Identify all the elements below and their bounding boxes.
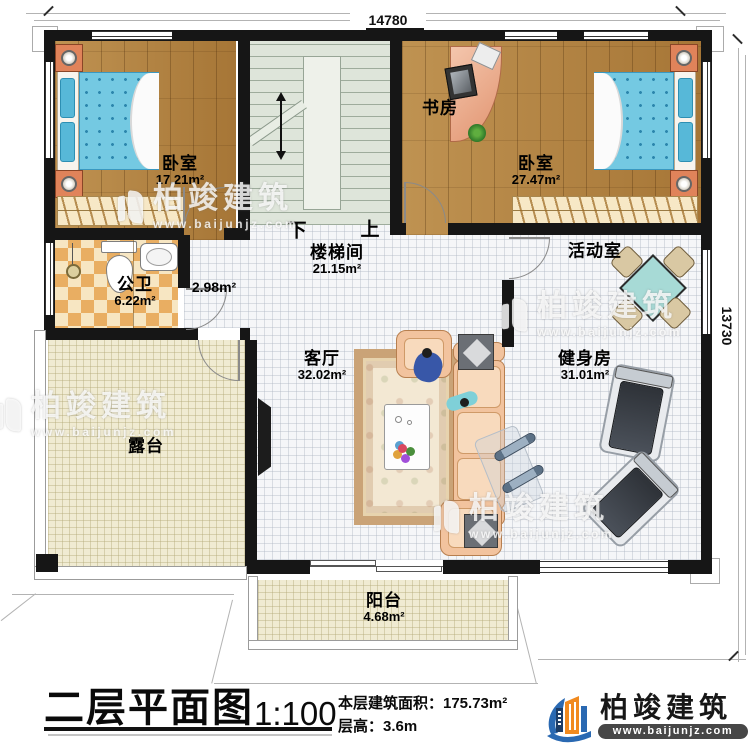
- floor-plan-page: 14780 13730: [0, 0, 750, 751]
- side-table-inlay: [463, 339, 491, 367]
- label-terrace: 露台: [128, 436, 164, 455]
- wall-bedroom1-right: [238, 41, 250, 228]
- room-area: 6.22m²: [114, 294, 155, 309]
- coffee-table: [384, 404, 430, 470]
- stair-label-down: 下: [287, 216, 306, 243]
- corner-tick-top-left: [43, 6, 54, 17]
- balcony-parapet-right: [508, 576, 518, 648]
- bed1-pillow-2: [60, 122, 75, 162]
- apron-diag-terrace: [1, 593, 36, 621]
- title-underline-shadow: [48, 734, 332, 736]
- side-table-inlay: [468, 518, 496, 546]
- room-name: 楼梯间: [310, 243, 364, 262]
- sliding-door-panel: [376, 566, 442, 572]
- wall-living-bottom-b: [443, 560, 540, 574]
- label-balcony: 阳台 4.68m²: [363, 591, 404, 625]
- person-head: [422, 348, 432, 358]
- brand-logo-icon: [543, 692, 595, 746]
- wall-living-gym-divider: [502, 280, 514, 347]
- apron-line-terrace: [12, 594, 234, 595]
- balcony-parapet-bottom: [248, 640, 518, 650]
- window-bedroom2-top-b: [584, 31, 648, 40]
- terrace-parapet-bottom: [34, 566, 247, 580]
- dimension-top: 14780: [350, 12, 426, 28]
- room-name: 阳台: [363, 591, 404, 610]
- wall-bath-bottom-a: [44, 328, 198, 340]
- teacup-icon: [395, 416, 402, 423]
- wall-bedroom2-bottom-b: [448, 223, 712, 235]
- tv-icon: [258, 398, 271, 476]
- room-name: 公卫: [114, 275, 155, 294]
- lamp-icon: [676, 50, 692, 66]
- floor-height-text: 层高：3.6m: [338, 719, 417, 734]
- room-area: 21.15m²: [310, 262, 364, 277]
- apron-diag-right: [515, 600, 537, 684]
- window-bedroom1-left: [45, 62, 54, 158]
- corner-tick-right-upper: [732, 34, 743, 45]
- apron-line-right: [538, 659, 746, 660]
- plant-icon: [468, 124, 486, 142]
- window-bedroom2-right: [702, 62, 711, 158]
- drawing-scale: 1:100: [254, 697, 337, 730]
- sink-basin: [146, 248, 172, 266]
- label-hallway-area: 2.98m²: [192, 280, 236, 296]
- wall-stair-right: [390, 41, 402, 223]
- bed2-pillow-2: [678, 122, 693, 162]
- computer-screen: [450, 70, 472, 95]
- lamp-icon: [61, 176, 77, 192]
- wall-living-bottom-a: [245, 560, 310, 574]
- room-area: 27.47m²: [512, 173, 560, 188]
- watermark-logo-icon: [0, 397, 24, 435]
- balcony-parapet-left: [248, 576, 258, 648]
- label-bedroom2: 卧室 27.47m²: [512, 154, 560, 188]
- brand-name: 柏竣建筑: [600, 694, 732, 722]
- room-name: 卧室: [156, 154, 204, 173]
- terrace-parapet-left: [34, 330, 46, 580]
- sliding-door-panel: [310, 560, 376, 566]
- eave-line-right-1: [738, 48, 739, 662]
- label-living: 客厅 32.02m²: [298, 349, 346, 383]
- stair-direction-arrow: [280, 100, 282, 152]
- room-area: 32.02m²: [298, 368, 346, 383]
- wardrobe2: [512, 196, 698, 224]
- shower-head-icon: [66, 264, 81, 279]
- stair-arrow-head-up: [276, 92, 286, 101]
- label-bathroom: 公卫 6.22m²: [114, 275, 155, 309]
- label-activity: 活动室: [568, 241, 622, 260]
- title-block: 二层平面图 1:100 本层建筑面积：175.73m² 层高：3.6m 柏竣建筑…: [0, 686, 750, 751]
- label-stairwell: 楼梯间 21.15m²: [310, 243, 364, 277]
- room-name: 露台: [128, 436, 164, 455]
- stair-label-up: 上: [360, 215, 379, 242]
- floor-area-text: 本层建筑面积：175.73m²: [338, 696, 507, 711]
- wardrobe1: [57, 196, 185, 226]
- window-gym-bottom: [540, 561, 668, 573]
- toilet-tank: [101, 241, 137, 253]
- wall-bedroom1-bottom-a: [44, 228, 184, 240]
- dimension-right: 13730: [719, 295, 735, 357]
- shower-cord: [72, 243, 73, 265]
- wall-living-left: [245, 340, 257, 567]
- bed1-pillow-1: [60, 78, 75, 118]
- title-underline: [44, 727, 332, 731]
- door-bedroom1-leaf: [183, 187, 185, 228]
- brand-logo-svg: [543, 692, 595, 746]
- drawing-title: 二层平面图: [44, 688, 254, 728]
- bed2-pillow-1: [678, 78, 693, 118]
- room-area: 31.01m²: [558, 368, 612, 383]
- window-bathroom-left: [45, 243, 54, 315]
- wall-gym-bottom: [668, 560, 712, 574]
- eave-line-right-2: [745, 55, 746, 655]
- corner-tick-top-right: [675, 6, 686, 17]
- wall-bedroom2-bottom-a: [390, 223, 406, 235]
- room-name: 卧室: [512, 154, 560, 173]
- terrace-corner-column: [36, 554, 58, 572]
- door-bedroom2-leaf: [404, 182, 406, 223]
- label-bedroom1: 卧室 17.21m²: [156, 154, 204, 188]
- room-area: 4.68m²: [363, 610, 404, 625]
- door-terrace-leaf: [238, 340, 240, 381]
- window-bedroom1-top: [92, 31, 172, 40]
- wall-bath-bottom-b: [240, 328, 250, 340]
- wall-bedroom1-bottom-b: [224, 228, 250, 240]
- room-name: 客厅: [298, 349, 346, 368]
- stair-arrow-head-down: [276, 151, 286, 160]
- door-activity-leaf: [509, 237, 550, 239]
- room-name: 书房: [422, 98, 458, 117]
- room-name: 健身房: [558, 349, 612, 368]
- room-area: 17.21m²: [156, 173, 204, 188]
- room-area: 2.98m²: [192, 280, 236, 296]
- stair-landing: [303, 56, 341, 210]
- room-name: 活动室: [568, 241, 622, 260]
- apron-diag-left: [211, 600, 233, 684]
- plan-canvas: 14780 13730: [0, 0, 750, 690]
- lamp-icon: [676, 176, 692, 192]
- brand-site: www.baijunjz.com: [598, 724, 748, 739]
- apron-line-balcony: [214, 683, 538, 684]
- side-table-bottom: [464, 514, 498, 548]
- person-head: [460, 398, 469, 407]
- label-study: 书房: [422, 98, 458, 117]
- side-table-top: [458, 334, 494, 370]
- teacup-icon: [407, 420, 412, 425]
- label-gym: 健身房 31.01m²: [558, 349, 612, 383]
- window-bedroom2-top-a: [505, 31, 557, 40]
- wall-bathroom-right-a: [178, 235, 190, 288]
- window-activity-right: [702, 250, 711, 334]
- flower-vase-icon: [398, 444, 407, 453]
- lamp-icon: [61, 50, 77, 66]
